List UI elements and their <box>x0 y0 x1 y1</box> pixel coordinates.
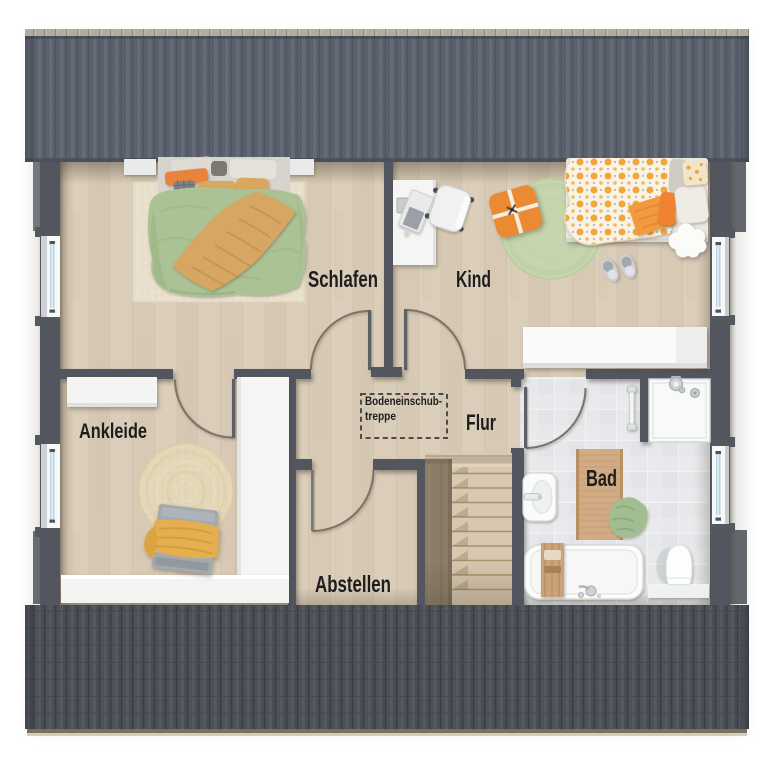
svg-text:Flur: Flur <box>466 410 496 435</box>
svg-text:Bad: Bad <box>586 465 617 491</box>
svg-text:Bodeneinschub-: Bodeneinschub- <box>365 394 442 408</box>
svg-text:treppe: treppe <box>365 409 396 423</box>
svg-text:Ankleide: Ankleide <box>79 419 147 443</box>
svg-text:Abstellen: Abstellen <box>315 571 391 597</box>
svg-text:Kind: Kind <box>456 266 491 292</box>
svg-text:Schlafen: Schlafen <box>308 266 378 292</box>
